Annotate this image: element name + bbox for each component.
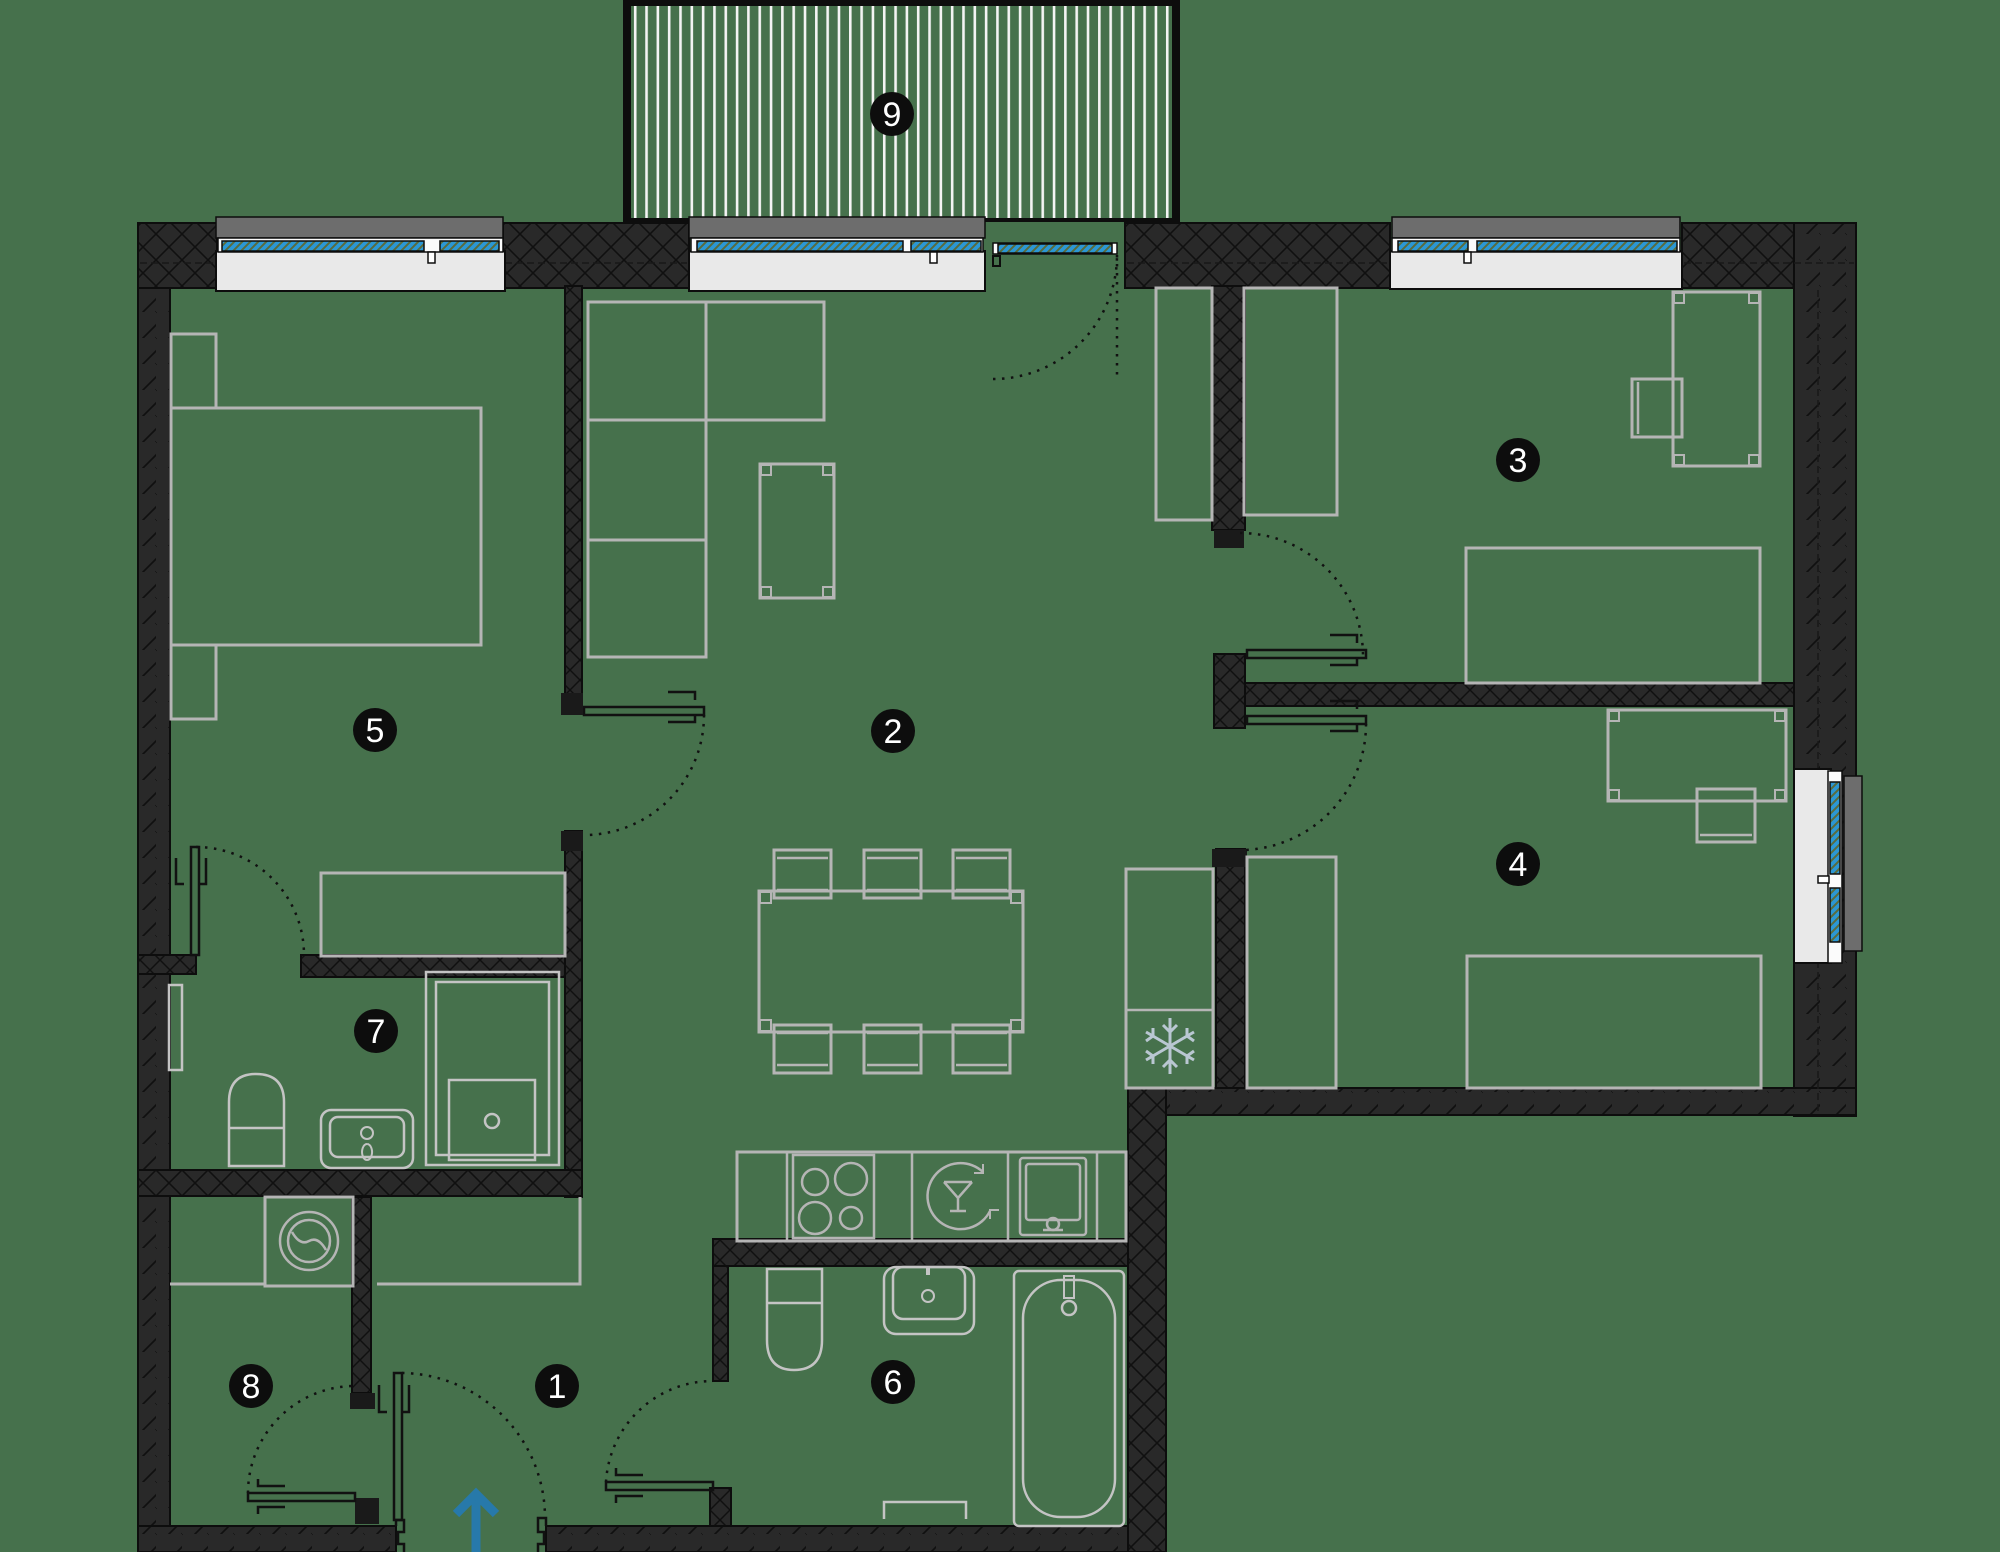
svg-text:8: 8 — [242, 1368, 261, 1406]
svg-text:4: 4 — [1509, 846, 1528, 884]
svg-text:9: 9 — [883, 96, 902, 134]
svg-text:5: 5 — [366, 712, 385, 750]
svg-text:2: 2 — [884, 713, 903, 751]
svg-text:3: 3 — [1509, 442, 1528, 480]
svg-text:1: 1 — [548, 1368, 567, 1406]
svg-text:6: 6 — [884, 1364, 903, 1402]
svg-text:7: 7 — [367, 1013, 386, 1051]
